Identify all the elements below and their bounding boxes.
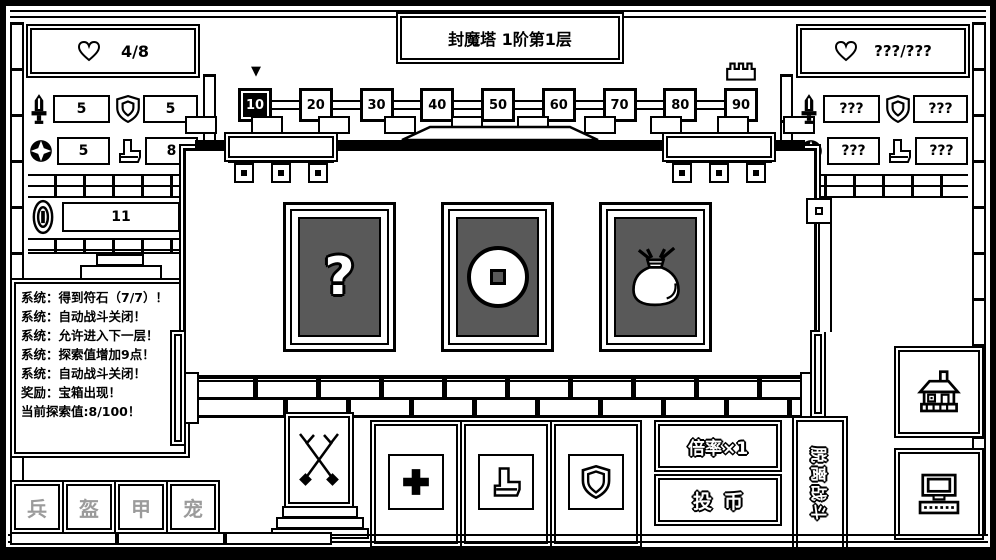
- left-brick-band: [28, 174, 198, 198]
- log-line: 系统：自动战斗关闭！: [21, 364, 179, 383]
- leave-battle-label: 脱离战斗: [808, 447, 832, 523]
- floor-title: 封魔塔 1阶第1层: [448, 26, 572, 50]
- crossed-swords-icon: [297, 431, 341, 489]
- coin-count: 11: [111, 209, 130, 225]
- boots-shrine-button[interactable]: [464, 424, 548, 544]
- insert-coin-button[interactable]: 投币: [658, 478, 778, 522]
- heart-icon: [77, 40, 101, 62]
- left-wall-column: [10, 22, 24, 534]
- home-button[interactable]: [898, 350, 980, 434]
- coin-currency-icon: [32, 196, 54, 238]
- enemy-hp-panel: ???/???: [800, 28, 966, 74]
- enemy-hp-value: ???/???: [874, 42, 932, 60]
- frame-left: [0, 0, 6, 560]
- sword-icon: [798, 93, 820, 125]
- frame-right: [990, 0, 996, 560]
- crown-icon: [724, 60, 758, 82]
- coin-count-box: 11: [62, 202, 180, 232]
- player-crit-stat: 5: [28, 134, 110, 168]
- money-bag-icon: [628, 247, 684, 307]
- enemy-speed-stat: ???: [886, 134, 968, 168]
- insert-coin-label: 投币: [681, 487, 755, 514]
- tab-helmet-label: 盔: [79, 493, 99, 522]
- leave-battle-button[interactable]: 脱离战斗: [796, 420, 844, 550]
- log-line: 当前探索值:8/100！: [21, 402, 179, 421]
- tab-weapon-label: 兵: [27, 493, 47, 522]
- railing-post-left: [184, 372, 199, 424]
- player-crit-value: 5: [57, 137, 110, 165]
- railing: [195, 376, 805, 418]
- left-brick-band-2: [28, 238, 180, 254]
- boot-icon: [478, 454, 534, 510]
- enemy-defense-value: ???: [913, 95, 968, 123]
- message-log: 系统：得到符石（7/7）！ 系统：自动战斗关闭！ 系统：允许进入下一层！ 系统：…: [14, 282, 186, 454]
- log-line: 系统：探索值增加9点！: [21, 345, 179, 364]
- enemy-speed-value: ???: [915, 137, 968, 165]
- sword-icon: [28, 93, 50, 125]
- log-line: 奖励：宝箱出现！: [21, 383, 179, 402]
- tab-armor[interactable]: 甲: [118, 484, 164, 530]
- multiplier-button[interactable]: 倍率×1: [658, 424, 778, 468]
- tab-pet-label: 宠: [183, 493, 203, 522]
- left-pillar: [170, 330, 186, 446]
- console-button[interactable]: [898, 452, 980, 536]
- plus-icon: [388, 454, 444, 510]
- right-inner-wall: [780, 74, 793, 148]
- left-tower: [228, 136, 334, 183]
- tab-helmet[interactable]: 盔: [66, 484, 112, 530]
- tab-pet[interactable]: 宠: [170, 484, 216, 530]
- shield-icon: [886, 95, 910, 123]
- mystery-card[interactable]: ?: [283, 202, 396, 352]
- wall-bracket: [806, 198, 832, 224]
- enemy-stats-panel: ??? ??? ??? ???: [798, 92, 968, 168]
- enemy-defense-stat: ???: [886, 92, 968, 126]
- multiplier-label: 倍率×1: [688, 434, 748, 459]
- reward-cards: ?: [283, 202, 712, 352]
- frame-line-1: [10, 10, 986, 12]
- question-mark-icon: ?: [324, 251, 354, 303]
- stage-ramp: [398, 125, 602, 142]
- tab-weapon[interactable]: 兵: [14, 484, 60, 530]
- log-line: 系统：自动战斗关闭！: [21, 307, 179, 326]
- current-floor-marker: ▼: [247, 64, 265, 79]
- game-screen: 封魔塔 1阶第1层 4/8 5 5 5 8 11 系统：得到: [0, 0, 996, 560]
- player-attack-stat: 5: [28, 92, 110, 126]
- log-line: 系统：得到符石（7/7）！: [21, 288, 179, 307]
- potion-shrine-button[interactable]: [374, 424, 458, 544]
- tab-armor-label: 甲: [131, 493, 151, 522]
- player-stats-panel: 5 5 5 8: [28, 92, 198, 168]
- pedestal-base: [80, 265, 162, 283]
- enemy-attack-stat: ???: [798, 92, 880, 126]
- wall-pipe: [818, 224, 832, 332]
- bottom-bar: [0, 547, 996, 560]
- right-brick-band: [798, 174, 968, 198]
- computer-icon: [916, 473, 962, 515]
- shield-shrine-button[interactable]: [554, 424, 638, 544]
- frame-top: [0, 0, 996, 6]
- player-hp-panel: 4/8: [30, 28, 196, 74]
- floor-tiles: [10, 532, 332, 545]
- battle-standard: [288, 416, 350, 504]
- player-hp-value: 4/8: [121, 42, 149, 61]
- money-bag-card[interactable]: [599, 202, 712, 352]
- copper-coin-icon: [467, 246, 529, 308]
- enemy-crit-value: ???: [827, 137, 880, 165]
- shield-icon: [116, 95, 140, 123]
- right-pillar: [810, 330, 826, 418]
- coin-card[interactable]: [441, 202, 554, 352]
- house-icon: [916, 370, 962, 414]
- right-tower: [666, 136, 772, 183]
- shield-icon: [568, 454, 624, 510]
- log-line: 系统：允许进入下一层！: [21, 326, 179, 345]
- left-inner-wall: [203, 74, 216, 148]
- heart-icon: [834, 40, 858, 62]
- crit-star-icon: [28, 138, 54, 164]
- enemy-attack-value: ???: [823, 95, 880, 123]
- boot-icon: [116, 138, 142, 164]
- floor-title-plaque: 封魔塔 1阶第1层: [400, 16, 620, 60]
- boot-icon: [886, 138, 912, 164]
- player-attack-value: 5: [53, 95, 110, 123]
